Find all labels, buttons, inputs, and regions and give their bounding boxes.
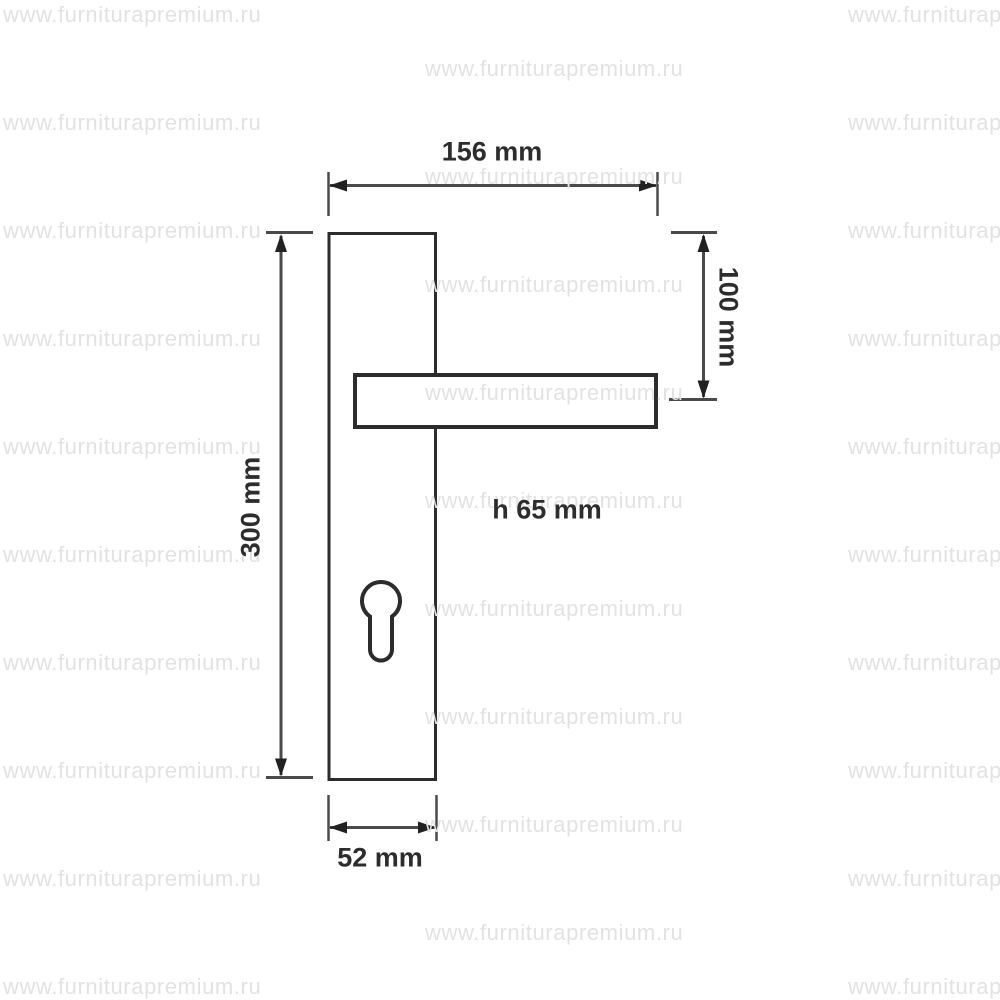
diagram-stage: www.furniturapremium.ruwww.furnituraprem… [0, 0, 1000, 1000]
dim-total-width [329, 172, 658, 216]
door-handle-drawing [0, 0, 1000, 1000]
arrow-left-icon [329, 822, 347, 834]
backplate-outline [329, 234, 436, 780]
dim-handle-offset [669, 233, 717, 400]
arrow-right-icon [639, 180, 657, 192]
handle-lever-outline [355, 375, 656, 427]
dim-plate-height [266, 233, 313, 778]
arrow-up-icon [698, 234, 710, 252]
dim-plate-width [329, 795, 437, 841]
arrow-down-icon [275, 759, 287, 777]
arrow-up-icon [275, 234, 287, 252]
arrow-left-icon [329, 180, 347, 192]
arrow-down-icon [698, 381, 710, 399]
arrow-right-icon [418, 822, 436, 834]
